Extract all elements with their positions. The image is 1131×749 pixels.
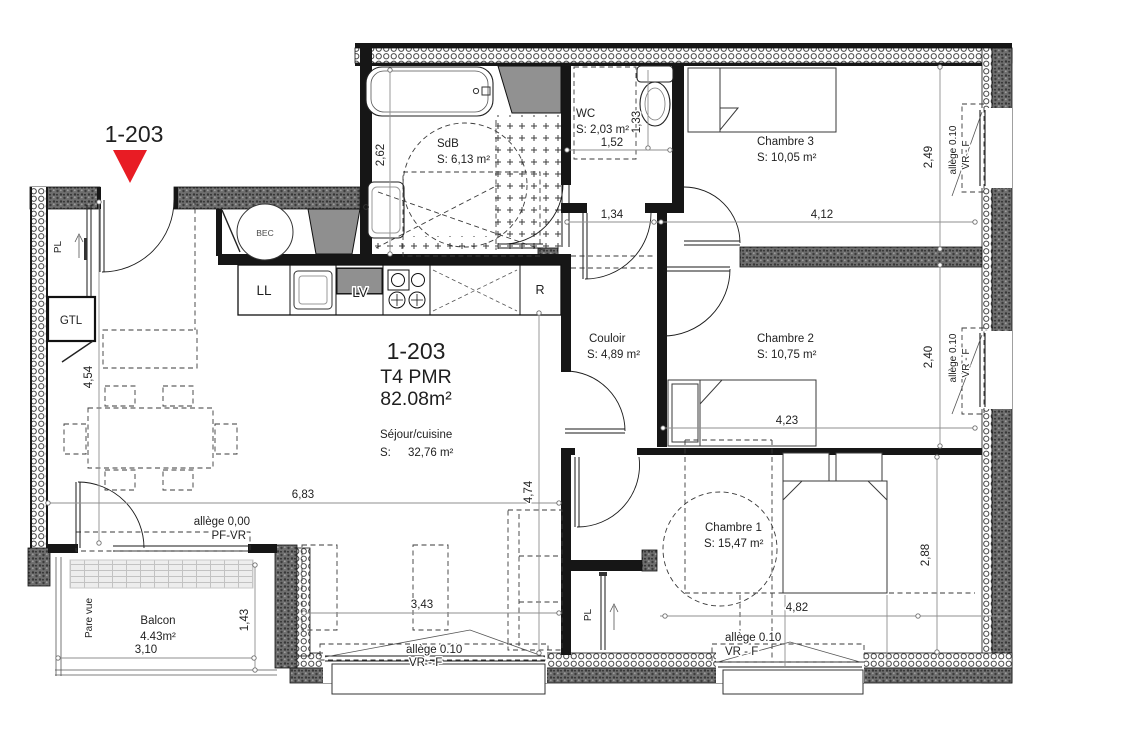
door-sejour-couloir [565, 371, 625, 433]
washing-machine-label: LL [256, 283, 272, 298]
room-chambre1-area: S: 15,47 m² [704, 538, 764, 550]
wall-sdb-wc [561, 63, 571, 185]
wall-wc-south-right [645, 203, 684, 213]
dim-balcon-width: 3,10 [135, 644, 157, 656]
room-couloir-name: Couloir [589, 333, 626, 345]
fridge-label: R [535, 283, 544, 297]
unit-marker-label: 1-203 [105, 121, 164, 147]
dim-couloir-width: 1,34 [601, 209, 624, 221]
unit-marker-pin-icon[interactable] [113, 150, 147, 183]
chambre3-bed [688, 68, 836, 132]
sofa [508, 510, 562, 650]
chambre1-allege-line2: VR - F [725, 646, 758, 658]
floor-plan-canvas: 2,62 1,33 1,52 1,34 4,12 2,49 4,23 2,40 … [0, 0, 1131, 749]
room-sdb-area: S: 6,13 m² [437, 154, 490, 166]
wall-wc-chambre3 [672, 63, 684, 213]
duct-shaft [308, 209, 360, 254]
wall-chambre3-chambre2 [740, 247, 982, 267]
dim-sejour-window: 3,43 [411, 599, 433, 611]
nightstand-left [783, 453, 829, 481]
dishwasher-label: LV [352, 285, 368, 300]
pillar-chambre1 [642, 550, 657, 571]
gtl-label: GTL [60, 315, 83, 327]
dim-chambre1-width: 4,82 [786, 602, 808, 614]
title-unit: 1-203 [387, 338, 446, 364]
room-wc-area: S: 2,03 m² [576, 124, 629, 136]
room-chambre2-name: Chambre 2 [757, 333, 814, 345]
balcony-allege-line2: PF-VR [212, 530, 247, 542]
dim-wc-width: 1,52 [601, 137, 623, 149]
dim-sejour-height: 4,54 [83, 365, 95, 388]
room-balcon-name: Balcon [140, 615, 175, 627]
dim-wc-height: 1,33 [631, 111, 643, 133]
door-wc [583, 213, 651, 279]
nightstand-right [836, 453, 882, 481]
privacy-screen-label: Pare vue [84, 598, 95, 638]
title-type: T4 PMR [380, 366, 452, 388]
door-chambre3 [684, 187, 740, 245]
floor-plan-page: 2,62 1,33 1,52 1,34 4,12 2,49 4,23 2,40 … [0, 0, 1131, 749]
wall-south [290, 630, 1012, 694]
sejour-allege-line2: VR - F [409, 657, 442, 669]
dim-chambre2-width: 4,23 [776, 415, 798, 427]
room-sejour-area-value: 32,76 m² [408, 447, 454, 459]
wall-wc-south-left [561, 203, 587, 213]
dim-chambre1-height: 2,88 [920, 544, 932, 566]
chambre2-allege-line1: allège 0.10 [948, 333, 959, 382]
title-block: 1-203 T4 PMR 82.08m² [380, 338, 452, 410]
dim-sejour-width: 6,83 [292, 489, 314, 501]
duct-shaft-sdb [498, 66, 561, 113]
room-sejour-area-prefix: S: [380, 447, 391, 459]
closet-chambre1 [599, 572, 618, 650]
chambre1-bed [783, 453, 887, 593]
room-chambre2-area: S: 10,75 m² [757, 349, 817, 361]
title-area: 82.08m² [380, 388, 452, 410]
chambre3-allege-line2: VR - F [961, 141, 972, 170]
room-chambre1-name: Chambre 1 [705, 522, 762, 534]
water-heater-label: BEC [256, 228, 273, 238]
wall-closet-chambre1-top [565, 560, 645, 571]
wall-sejour-couloir [561, 254, 571, 372]
dim-chambre3-width: 4,12 [811, 209, 833, 221]
toilet-bowl [640, 82, 670, 126]
washbasin [368, 182, 404, 238]
chambre2-bed [668, 380, 816, 446]
door-entry [100, 200, 174, 272]
wall-party-northwest [30, 187, 360, 209]
door-chambre1 [575, 457, 640, 527]
closet-chambre1-label: PL [583, 608, 594, 621]
dim-sejour-height2: 4,74 [523, 480, 535, 503]
room-chambre3-name: Chambre 3 [757, 136, 814, 148]
chambre1-allege-line1: allège 0.10 [725, 632, 781, 644]
door-chambre2 [663, 267, 730, 336]
balcony-allege-line1: allège 0,00 [194, 516, 250, 528]
toilet-tank [637, 66, 673, 82]
room-sdb-name: SdB [437, 138, 459, 150]
balcony [48, 532, 277, 676]
room-chambre3-area: S: 10,05 m² [757, 152, 817, 164]
wall-bec-niche [216, 209, 222, 256]
dining-table [88, 408, 213, 468]
closet-entry [75, 205, 91, 300]
wall-sejour-chambre1 [561, 448, 571, 655]
wall-couloir-chambre2 [657, 213, 667, 447]
armchair-right [413, 545, 448, 630]
dim-sdb-height: 2,62 [375, 144, 387, 166]
sideboard [103, 330, 197, 368]
room-wc-name: WC [576, 108, 595, 120]
door-balcony [76, 482, 144, 548]
room-sejour-name: Séjour/cuisine [380, 429, 452, 441]
sejour-allege-line1: allège 0.10 [406, 644, 462, 656]
gtl-box [48, 297, 95, 362]
unit-marker[interactable]: 1-203 [105, 121, 164, 183]
room-couloir-area: S: 4,89 m² [587, 349, 640, 361]
dim-balcon-height: 1,43 [239, 609, 251, 631]
wall-north [355, 43, 1012, 66]
chambre3-allege-line1: allège 0.10 [948, 125, 959, 174]
closet-entry-label: PL [53, 240, 64, 253]
room-balcon-area: 4.43m² [140, 631, 176, 643]
chambre2-allege-line2: VR - F [961, 349, 972, 378]
dim-chambre2-height: 2,40 [923, 346, 935, 368]
wall-west [30, 187, 48, 560]
balcony-grate [70, 560, 253, 588]
dim-chambre3-height: 2,49 [923, 146, 935, 168]
